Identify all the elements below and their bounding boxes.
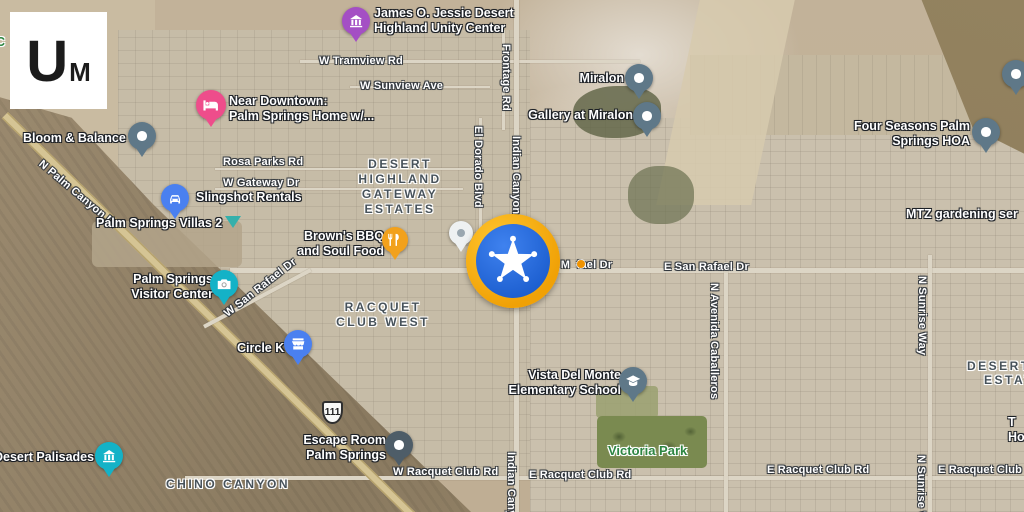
marker-miralon-dot [634,73,644,83]
label-bloom-balance[interactable]: Bloom & Balance [23,131,126,146]
logo-letter-m: M [69,59,91,85]
building-icon [101,448,117,464]
label-unity-center[interactable]: James O. Jessie Desert Highland Unity Ce… [374,6,514,36]
marker-bloom-balance[interactable] [128,122,156,150]
marker-bloom-balance-dot [137,131,147,141]
marker-escape-room[interactable] [385,431,413,459]
marker-unity-center-tail [350,33,362,42]
label-gallery-at-miralon[interactable]: Gallery at Miralon [528,108,633,123]
label-mtz-gardening[interactable]: MTZ gardening ser [906,207,1018,222]
road-label-el-dorado: El Dorado Blvd [472,126,484,208]
label-desert-palisades[interactable]: Desert Palisades [0,450,94,465]
road-label-e-racquet-3: E Racquet Club Rd [938,464,1024,476]
road-san-rafael [230,268,1024,273]
area-label-racquet-club-west: RACQUET CLUB WEST [336,300,430,330]
marker-desert-palisades-tail [103,468,115,477]
road-label-caballeros: N Avenida Caballeros [708,283,720,399]
label-four-seasons-hoa[interactable]: Four Seasons Palm Springs HOA [854,119,970,149]
label-right-edge-fragment[interactable]: T Ho [1008,415,1024,445]
store-icon [290,336,306,352]
marker-villas-triangle-shape [225,216,241,228]
marker-four-seasons-dot [981,127,991,137]
liveuamap-logo[interactable]: U M [10,12,107,109]
label-victoria-park[interactable]: Victoria Park [608,443,687,458]
satellite-map[interactable]: 111 U M W Tramview RdW Sunview AveFronta… [0,0,1024,512]
marker-browns-bbq-tail [389,251,401,260]
marker-visitor-center[interactable] [210,270,238,298]
road-label-sunrise-frag: N Sunrise Way [915,455,927,512]
marker-top-right-edge[interactable] [1002,60,1024,88]
marker-behind-badge-dot [457,229,465,237]
road-label-tramview: W Tramview Rd [319,55,403,67]
road-label-e-racquet-2: E Racquet Club Rd [767,464,869,476]
label-visitor-center[interactable]: Palm Springs Visitor Center [131,272,213,302]
label-near-downtown-home[interactable]: Near Downtown: Palm Springs Home w/... [229,94,374,124]
car-icon [167,190,183,206]
marker-slingshot-tail [169,210,181,219]
marker-top-right-edge-dot [1011,69,1021,79]
road-label-sunview: W Sunview Ave [360,80,443,92]
route-111-text: 111 [325,407,341,418]
marker-bloom-balance-tail [136,148,148,157]
marker-near-downtown[interactable] [196,90,226,120]
marker-mini-dot[interactable] [577,260,585,268]
road-label-e-san-rafael: E San Rafael Dr [664,261,749,273]
label-miralon[interactable]: Miralon [580,71,624,86]
area-label-chino-canyon: CHINO CANYON [166,477,290,492]
road-caballeros [724,262,728,512]
marker-four-seasons[interactable] [972,118,1000,146]
road-sunrise-way [928,255,932,512]
marker-desert-palisades[interactable] [95,442,123,470]
label-slingshot-rentals[interactable]: Slingshot Rentals [196,190,302,205]
victoria-park-green [597,416,707,468]
road-label-w-racquet: W Racquet Club Rd [393,466,498,478]
marker-escape-room-dot [394,440,404,450]
marker-browns-bbq[interactable] [382,227,408,253]
area-label-desert-estates-2: ESTATES [984,373,1024,388]
label-escape-room[interactable]: Escape Room Palm Springs [303,433,386,463]
marker-miralon[interactable] [625,64,653,92]
marker-villas-triangle[interactable] [225,214,241,230]
sheriff-badge-inner [476,224,550,298]
road-label-gateway: W Gateway Dr [223,177,299,189]
sheriff-star-icon [487,235,539,287]
area-label-desert-highland: DESERT HIGHLAND GATEWAY ESTATES [358,157,441,217]
marker-circle-k-tail [292,356,304,365]
marker-top-right-edge-tail [1010,86,1022,95]
road-label-indian-canyon-frag: Indian Canyon Dr [505,452,517,512]
marker-gallery-at-miralon-tail [641,128,653,137]
road-rosa-parks [215,168,483,170]
marker-four-seasons-tail [980,144,992,153]
road-label-frontage: Frontage Rd [500,44,512,111]
label-browns-bbq[interactable]: Brown's BBQ and Soul Food [297,229,384,259]
marker-slingshot[interactable] [161,184,189,212]
marker-gallery-at-miralon[interactable] [633,102,661,130]
marker-vista-del-monte[interactable] [619,367,647,395]
marker-visitor-center-tail [218,296,230,305]
grad-cap-icon [625,373,641,389]
building-icon [348,13,364,29]
camera-icon [216,276,232,292]
marker-vista-del-monte-tail [627,393,639,402]
road-label-sunrise: N Sunrise Way [916,276,928,355]
marker-escape-room-tail [393,457,405,466]
marker-circle-k[interactable] [284,330,312,358]
marker-behind-badge-tail [455,243,467,252]
area-label-desert-estates-1: DESERT [967,359,1024,374]
label-vista-del-monte[interactable]: Vista Del Monte Elementary School [508,368,621,398]
bed-icon [202,96,219,113]
road-label-rosa-parks: Rosa Parks Rd [223,156,303,168]
food-icon [387,232,402,247]
label-green-fragment[interactable]: C [0,35,5,50]
label-circle-k[interactable]: Circle K [237,341,284,356]
sheriff-badge-marker[interactable] [466,214,560,308]
road-label-e-racquet-1: E Racquet Club Rd [529,469,631,481]
marker-near-downtown-tail [205,118,217,127]
logo-letter-u: U [26,33,68,91]
marker-miralon-tail [633,90,645,99]
label-palm-springs-villas-2[interactable]: Palm Springs Villas 2 [96,216,222,231]
marker-unity-center[interactable] [342,7,370,35]
tree-grove [628,166,694,224]
marker-gallery-at-miralon-dot [642,111,652,121]
